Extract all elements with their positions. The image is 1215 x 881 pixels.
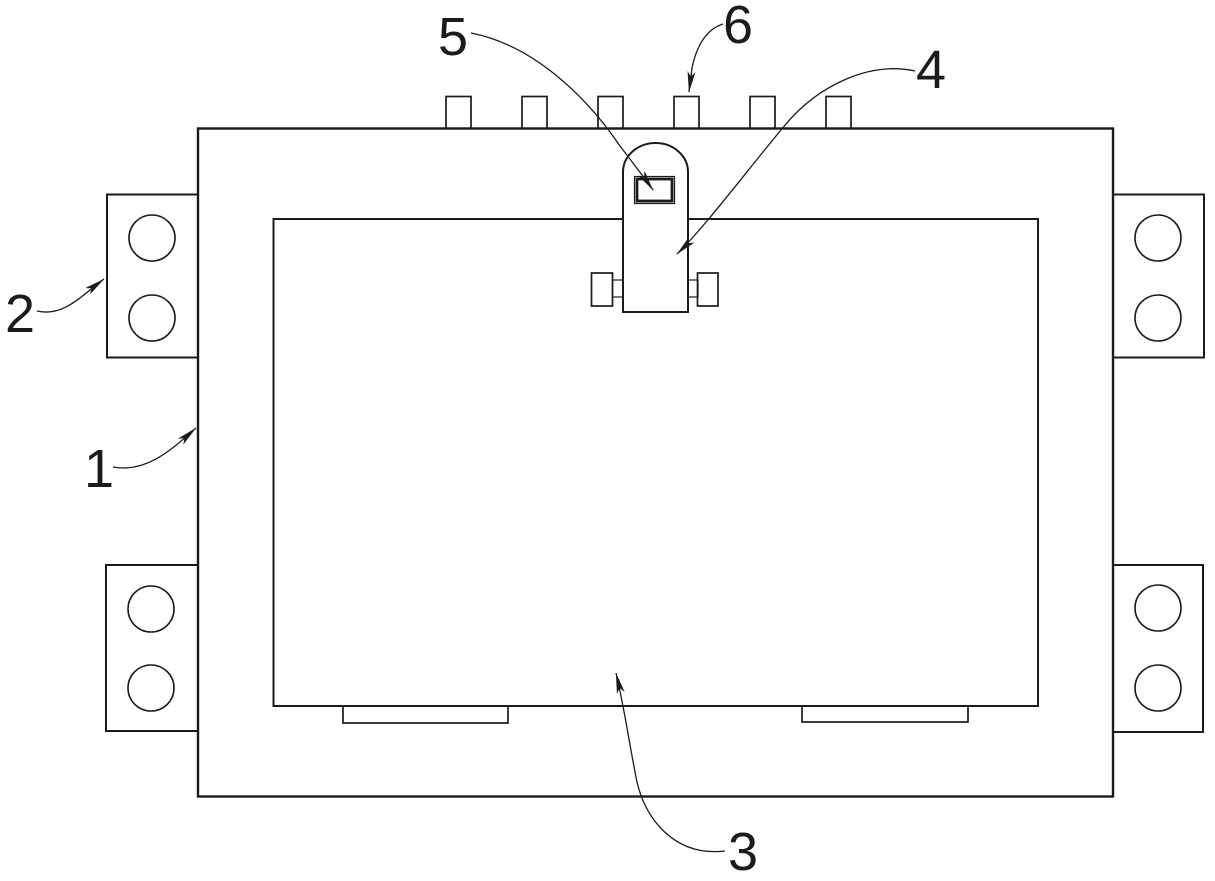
mounting-hole	[1135, 215, 1181, 261]
leader-line-2	[37, 279, 104, 312]
center-clamp-body	[623, 143, 688, 312]
mounting-bracket-top-left	[107, 195, 198, 358]
ref-label-5: 5	[438, 7, 468, 67]
patent-figure: 1 2 3 4 5 6	[0, 0, 1215, 881]
leader-line-1	[113, 428, 196, 468]
leader-line-3	[616, 673, 725, 852]
patent-figure-canvas: 1 2 3 4 5 6	[0, 0, 1215, 881]
mounting-hole	[1135, 585, 1181, 631]
clamp-pin-neck-left	[613, 280, 624, 297]
mounting-bracket-bottom-right	[1113, 565, 1203, 732]
support-foot-right	[802, 706, 968, 722]
leader-line-6	[689, 24, 723, 92]
top-tab	[522, 97, 547, 129]
bracket-plate	[106, 565, 198, 731]
clamp-pin-neck-right	[688, 280, 699, 297]
top-tab-row	[446, 97, 851, 129]
mounting-hole	[129, 215, 175, 261]
mounting-hole	[128, 586, 174, 632]
ref-label-6: 6	[723, 0, 753, 55]
ref-label-3: 3	[728, 822, 758, 881]
bracket-plate	[1113, 565, 1203, 732]
mounting-hole	[129, 295, 175, 341]
top-tab	[598, 97, 623, 129]
top-tab	[750, 97, 775, 129]
leader-line-4	[677, 69, 915, 254]
top-tab	[674, 97, 699, 129]
top-tab	[446, 97, 471, 129]
mounting-bracket-top-right	[1113, 195, 1204, 358]
support-foot-left	[343, 706, 508, 723]
mounting-hole	[128, 665, 174, 711]
mounting-hole	[1135, 295, 1181, 341]
bracket-plate	[1113, 195, 1204, 358]
mounting-hole	[1135, 665, 1181, 711]
clamp-side-pin-left	[592, 273, 613, 306]
top-tab	[826, 97, 851, 129]
clamp-side-pin-right	[698, 273, 719, 306]
bracket-plate	[107, 195, 198, 358]
ref-label-4: 4	[916, 40, 946, 100]
ref-label-1: 1	[84, 439, 114, 499]
mounting-bracket-bottom-left	[106, 565, 198, 731]
ref-label-2: 2	[5, 284, 35, 344]
